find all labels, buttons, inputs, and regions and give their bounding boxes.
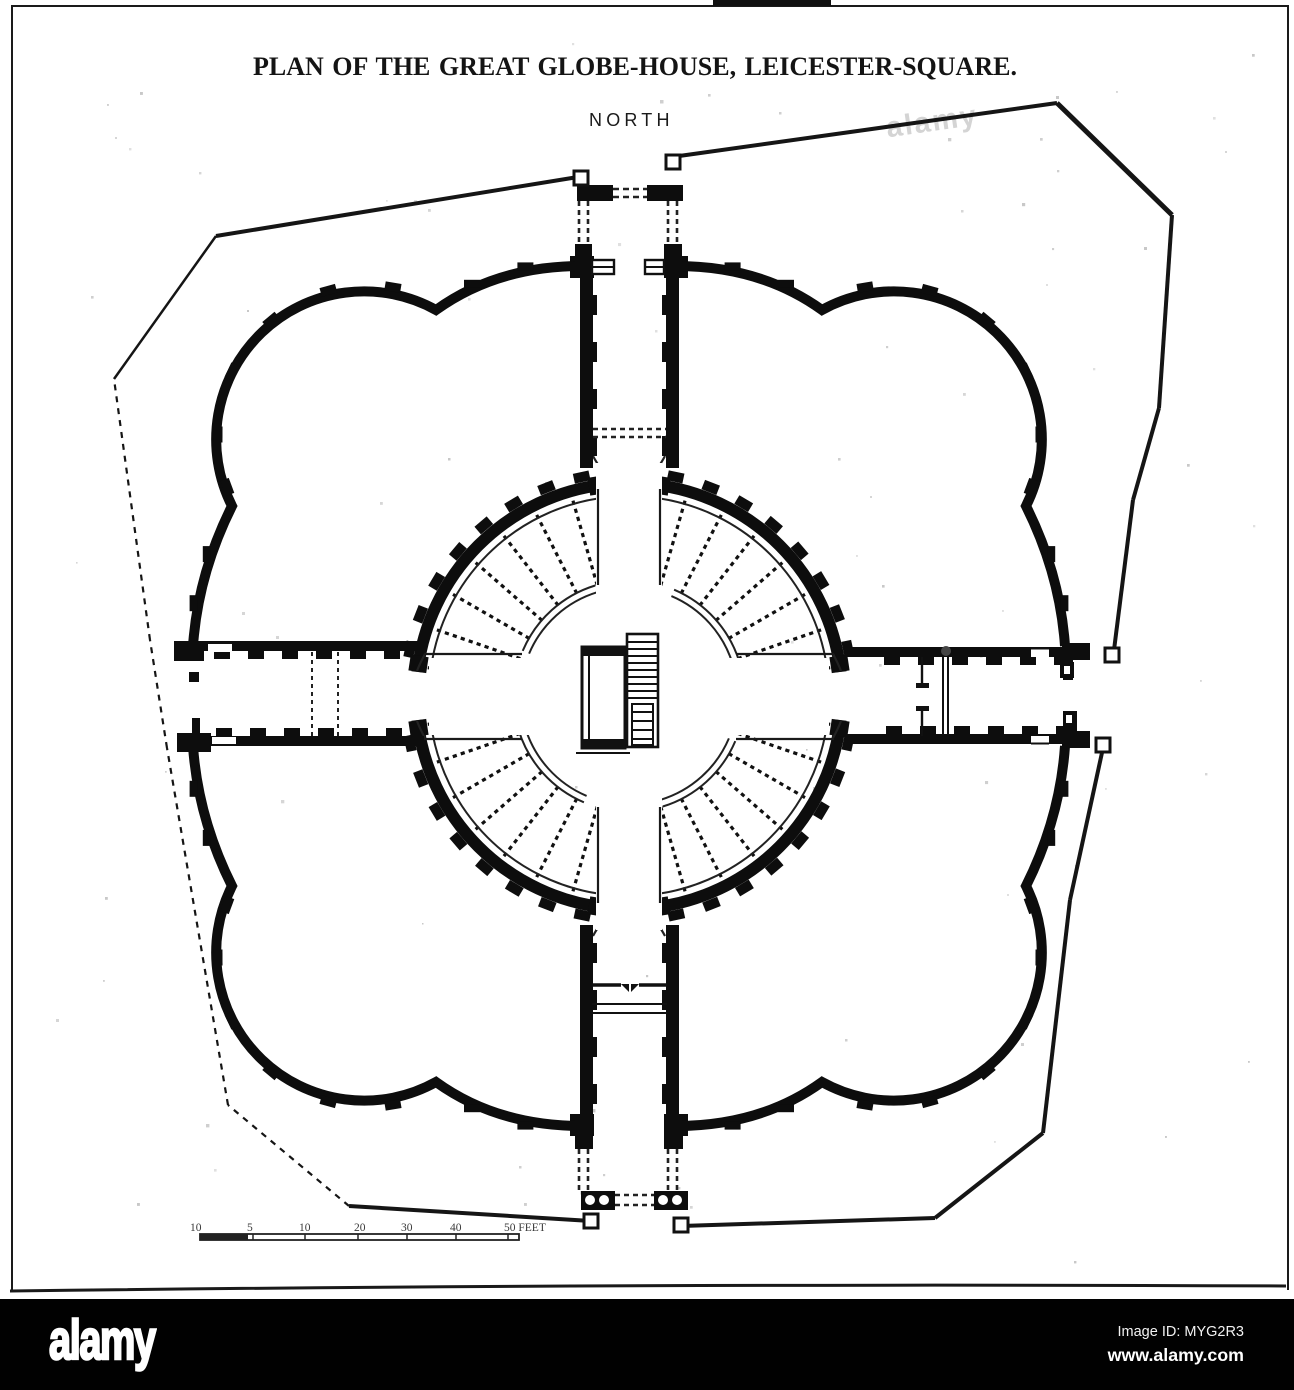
svg-text:40: 40 xyxy=(450,1222,462,1234)
svg-text:5: 5 xyxy=(247,1222,253,1234)
svg-text:10: 10 xyxy=(299,1222,311,1234)
svg-text:20: 20 xyxy=(354,1222,366,1234)
svg-text:10: 10 xyxy=(190,1222,202,1234)
svg-text:30: 30 xyxy=(401,1222,413,1234)
svg-text:50 FEET: 50 FEET xyxy=(504,1222,546,1234)
